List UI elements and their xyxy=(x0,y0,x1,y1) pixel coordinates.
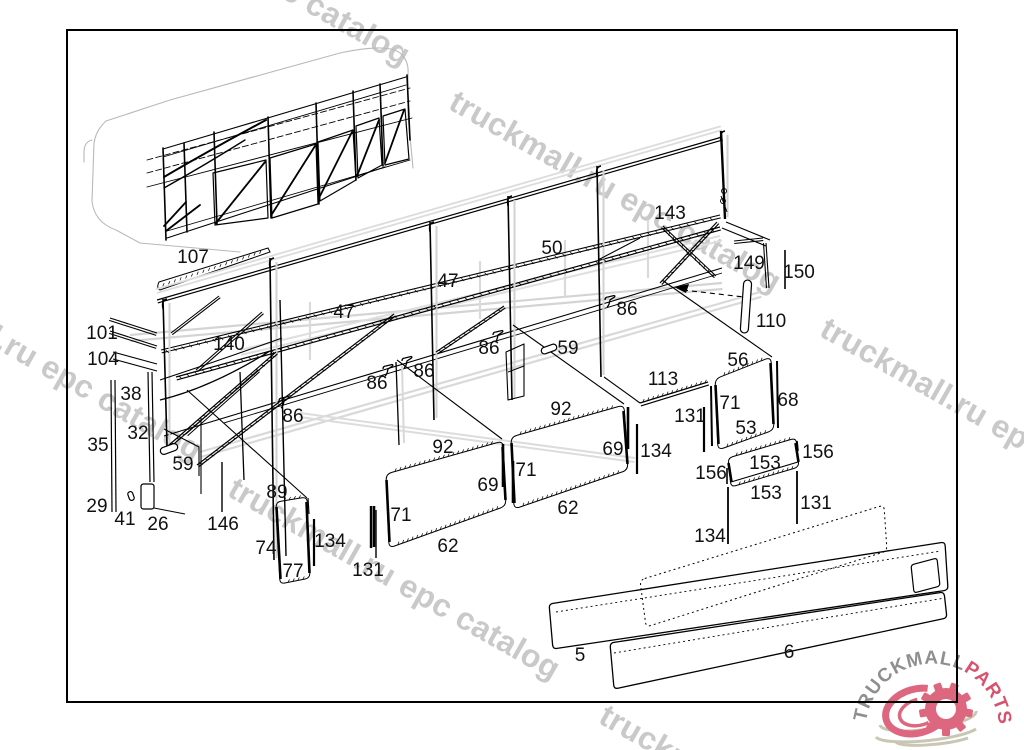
svg-text:32: 32 xyxy=(127,423,148,444)
svg-text:134: 134 xyxy=(314,531,346,552)
svg-text:50: 50 xyxy=(541,238,562,259)
svg-text:92: 92 xyxy=(432,437,453,458)
svg-text:110: 110 xyxy=(756,311,786,332)
svg-text:86: 86 xyxy=(616,299,637,320)
svg-text:41: 41 xyxy=(114,509,135,530)
svg-text:89: 89 xyxy=(266,482,287,503)
svg-text:140: 140 xyxy=(213,334,245,355)
svg-text:47: 47 xyxy=(333,302,354,323)
svg-text:131: 131 xyxy=(352,560,384,581)
svg-text:149: 149 xyxy=(733,253,765,274)
svg-text:47: 47 xyxy=(437,271,458,292)
svg-text:71: 71 xyxy=(515,460,536,481)
svg-text:156: 156 xyxy=(695,463,727,484)
svg-text:156: 156 xyxy=(802,442,834,463)
svg-text:113: 113 xyxy=(648,369,678,390)
svg-text:5: 5 xyxy=(575,645,586,666)
svg-text:29: 29 xyxy=(86,496,107,517)
svg-text:38: 38 xyxy=(120,384,141,405)
svg-text:150: 150 xyxy=(783,262,815,283)
svg-text:131: 131 xyxy=(674,406,706,427)
svg-text:92: 92 xyxy=(550,399,571,420)
svg-text:146: 146 xyxy=(207,514,239,535)
svg-text:131: 131 xyxy=(800,493,832,514)
svg-text:56: 56 xyxy=(727,350,748,371)
svg-text:86: 86 xyxy=(366,373,387,394)
svg-text:26: 26 xyxy=(147,514,168,535)
svg-text:86: 86 xyxy=(282,406,303,427)
svg-text:59: 59 xyxy=(172,454,193,475)
svg-text:69: 69 xyxy=(602,439,623,460)
svg-text:153: 153 xyxy=(750,483,782,504)
svg-text:143: 143 xyxy=(654,203,686,224)
svg-text:107: 107 xyxy=(177,247,209,268)
svg-text:134: 134 xyxy=(694,526,726,547)
svg-text:153: 153 xyxy=(749,453,781,474)
svg-text:134: 134 xyxy=(640,441,672,462)
svg-text:86: 86 xyxy=(478,338,499,359)
svg-text:6: 6 xyxy=(784,642,795,663)
svg-text:53: 53 xyxy=(735,418,756,439)
svg-text:59: 59 xyxy=(557,338,578,359)
svg-text:101: 101 xyxy=(86,323,118,344)
svg-text:62: 62 xyxy=(437,536,458,557)
svg-text:35: 35 xyxy=(87,435,108,456)
svg-text:69: 69 xyxy=(477,475,498,496)
svg-text:71: 71 xyxy=(390,505,411,526)
svg-text:77: 77 xyxy=(282,561,303,582)
svg-text:74: 74 xyxy=(255,538,277,559)
svg-text:71: 71 xyxy=(719,393,740,414)
svg-text:104: 104 xyxy=(87,349,119,370)
svg-text:68: 68 xyxy=(777,390,798,411)
svg-text:86: 86 xyxy=(413,361,434,382)
svg-text:62: 62 xyxy=(557,498,578,519)
